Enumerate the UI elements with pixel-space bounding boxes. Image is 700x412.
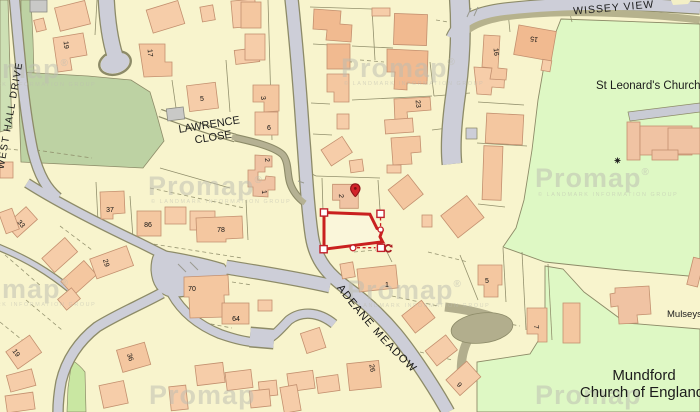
svg-text:Mundford: Mundford xyxy=(612,367,675,384)
svg-text:7: 7 xyxy=(532,325,539,330)
svg-text:Church of England: Church of England xyxy=(580,384,700,401)
svg-text:© LANDMARK INFORMATION GROUP: © LANDMARK INFORMATION GROUP xyxy=(151,198,291,205)
svg-text:26: 26 xyxy=(367,364,375,373)
svg-text:© LANDMARK INFORMATION GROUP: © LANDMARK INFORMATION GROUP xyxy=(350,302,490,309)
svg-text:© LANDMARK INFORMATION GROUP: © LANDMARK INFORMATION GROUP xyxy=(0,301,96,308)
svg-text:Promap®: Promap® xyxy=(148,171,263,201)
svg-text:17: 17 xyxy=(146,49,154,57)
svg-text:70: 70 xyxy=(188,286,196,293)
svg-text:5: 5 xyxy=(200,96,204,103)
svg-text:78: 78 xyxy=(217,227,225,234)
svg-text:St Leonard's Church: St Leonard's Church xyxy=(596,80,700,92)
svg-text:Promap®: Promap® xyxy=(535,163,650,193)
svg-text:15: 15 xyxy=(530,34,539,42)
svg-text:Promap®: Promap® xyxy=(0,274,69,304)
svg-text:1: 1 xyxy=(385,282,389,289)
svg-text:2: 2 xyxy=(337,194,344,198)
svg-text:6: 6 xyxy=(267,125,271,132)
svg-text:86: 86 xyxy=(144,222,152,229)
svg-text:1: 1 xyxy=(260,190,267,195)
svg-text:Promap®: Promap® xyxy=(341,53,456,83)
svg-text:5: 5 xyxy=(485,278,489,285)
svg-text:Mulseys: Mulseys xyxy=(667,309,700,320)
svg-text:Promap®: Promap® xyxy=(347,275,462,305)
svg-text:© LANDMARK INFORMATION GROUP: © LANDMARK INFORMATION GROUP xyxy=(538,191,678,198)
svg-text:2: 2 xyxy=(263,158,270,163)
svg-text:19: 19 xyxy=(62,41,70,49)
svg-text:3: 3 xyxy=(259,96,266,101)
svg-text:16: 16 xyxy=(492,48,500,56)
svg-text:37: 37 xyxy=(106,207,114,214)
svg-text:© LANDMARK INFORMATION GROUP: © LANDMARK INFORMATION GROUP xyxy=(344,80,484,87)
svg-text:23: 23 xyxy=(414,100,422,108)
svg-text:64: 64 xyxy=(232,316,240,323)
svg-text:Promap: Promap xyxy=(149,380,256,410)
